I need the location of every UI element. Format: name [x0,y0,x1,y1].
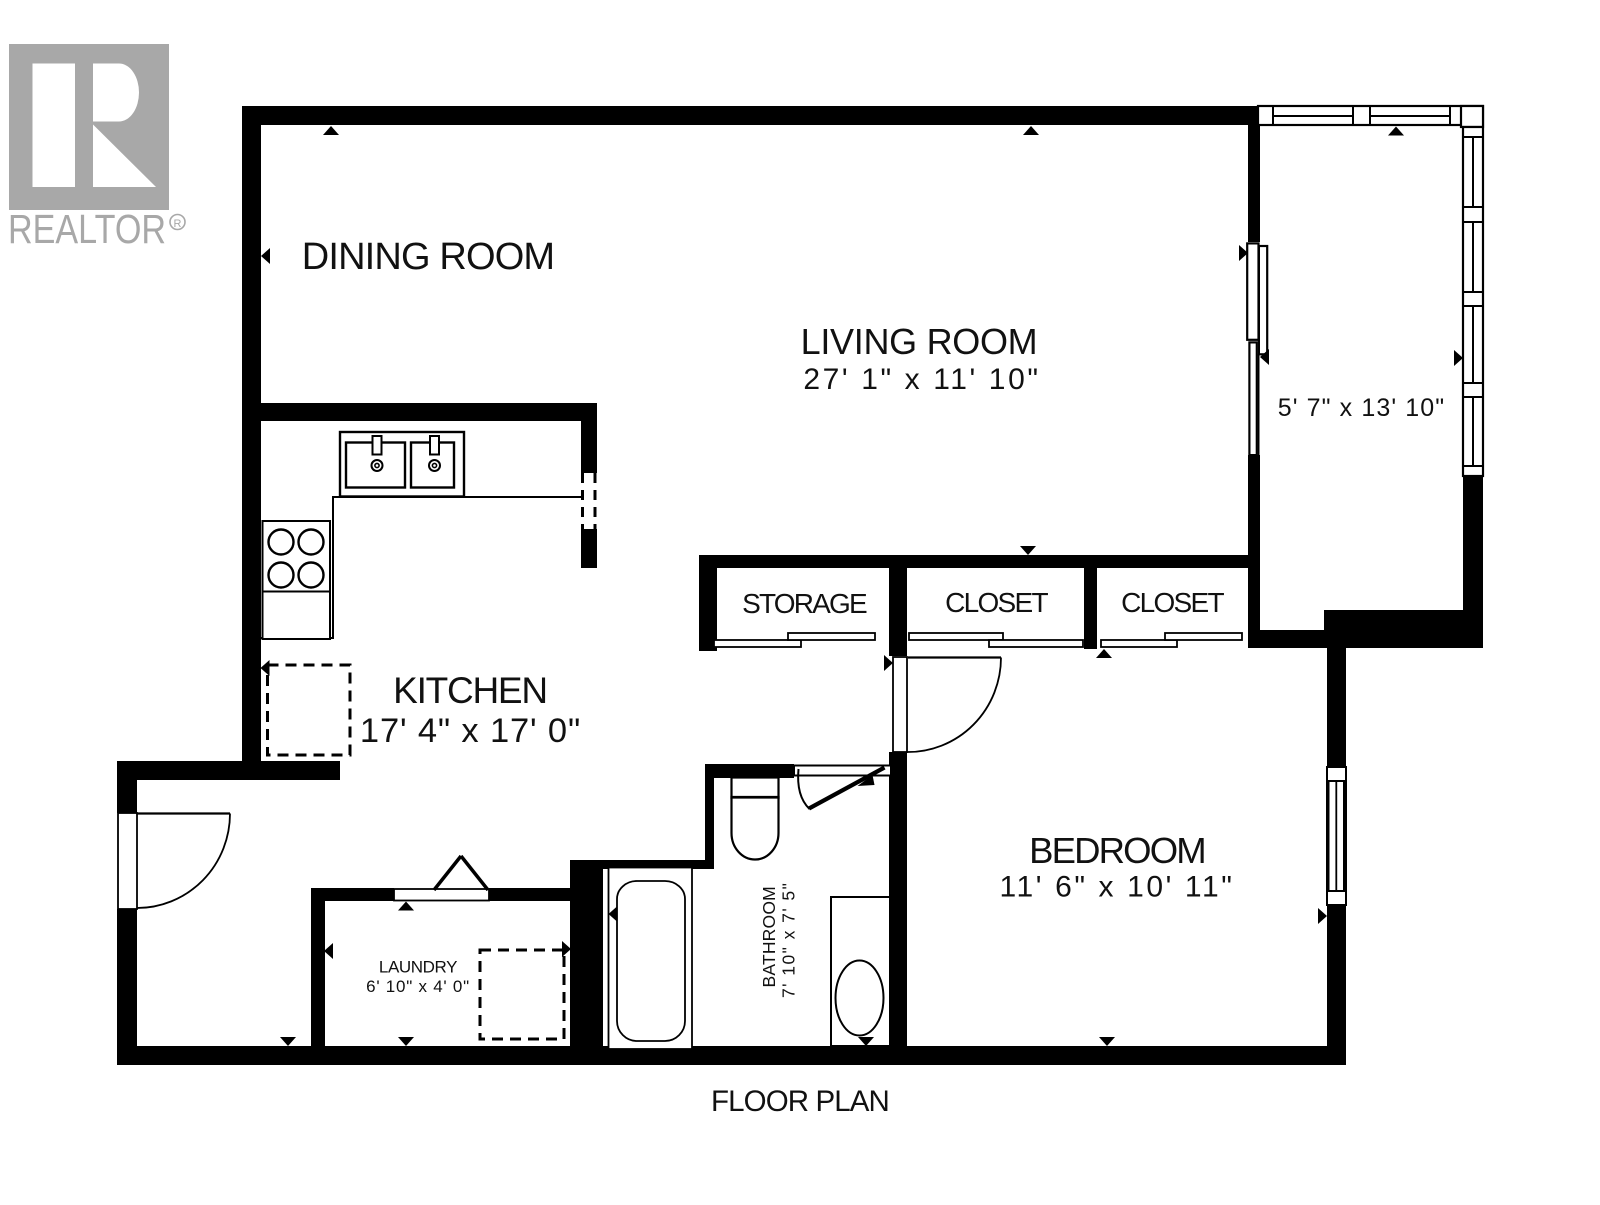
svg-text:27' 1" x 11' 10": 27' 1" x 11' 10" [803,363,1040,396]
svg-text:LAUNDRY: LAUNDRY [379,958,457,977]
svg-text:FLOOR PLAN: FLOOR PLAN [711,1085,889,1118]
svg-text:11' 6" x 10' 11": 11' 6" x 10' 11" [999,871,1234,904]
svg-text:CLOSET: CLOSET [945,587,1048,618]
svg-text:R: R [174,218,182,230]
svg-text:DINING ROOM: DINING ROOM [302,236,554,278]
svg-text:LIVING ROOM: LIVING ROOM [801,321,1038,362]
svg-text:5' 7" x 13' 10": 5' 7" x 13' 10" [1278,394,1446,422]
svg-text:BATHROOM: BATHROOM [759,886,779,987]
svg-text:KITCHEN: KITCHEN [393,670,547,711]
svg-text:CLOSET: CLOSET [1121,587,1224,618]
svg-text:6' 10" x 4' 0": 6' 10" x 4' 0" [366,977,470,996]
svg-text:17' 4" x 17' 0": 17' 4" x 17' 0" [360,712,581,750]
svg-text:BEDROOM: BEDROOM [1029,830,1205,871]
svg-text:REALTOR: REALTOR [8,206,166,252]
svg-text:STORAGE: STORAGE [742,588,867,619]
svg-text:7' 10" x 7' 5": 7' 10" x 7' 5" [779,882,799,998]
